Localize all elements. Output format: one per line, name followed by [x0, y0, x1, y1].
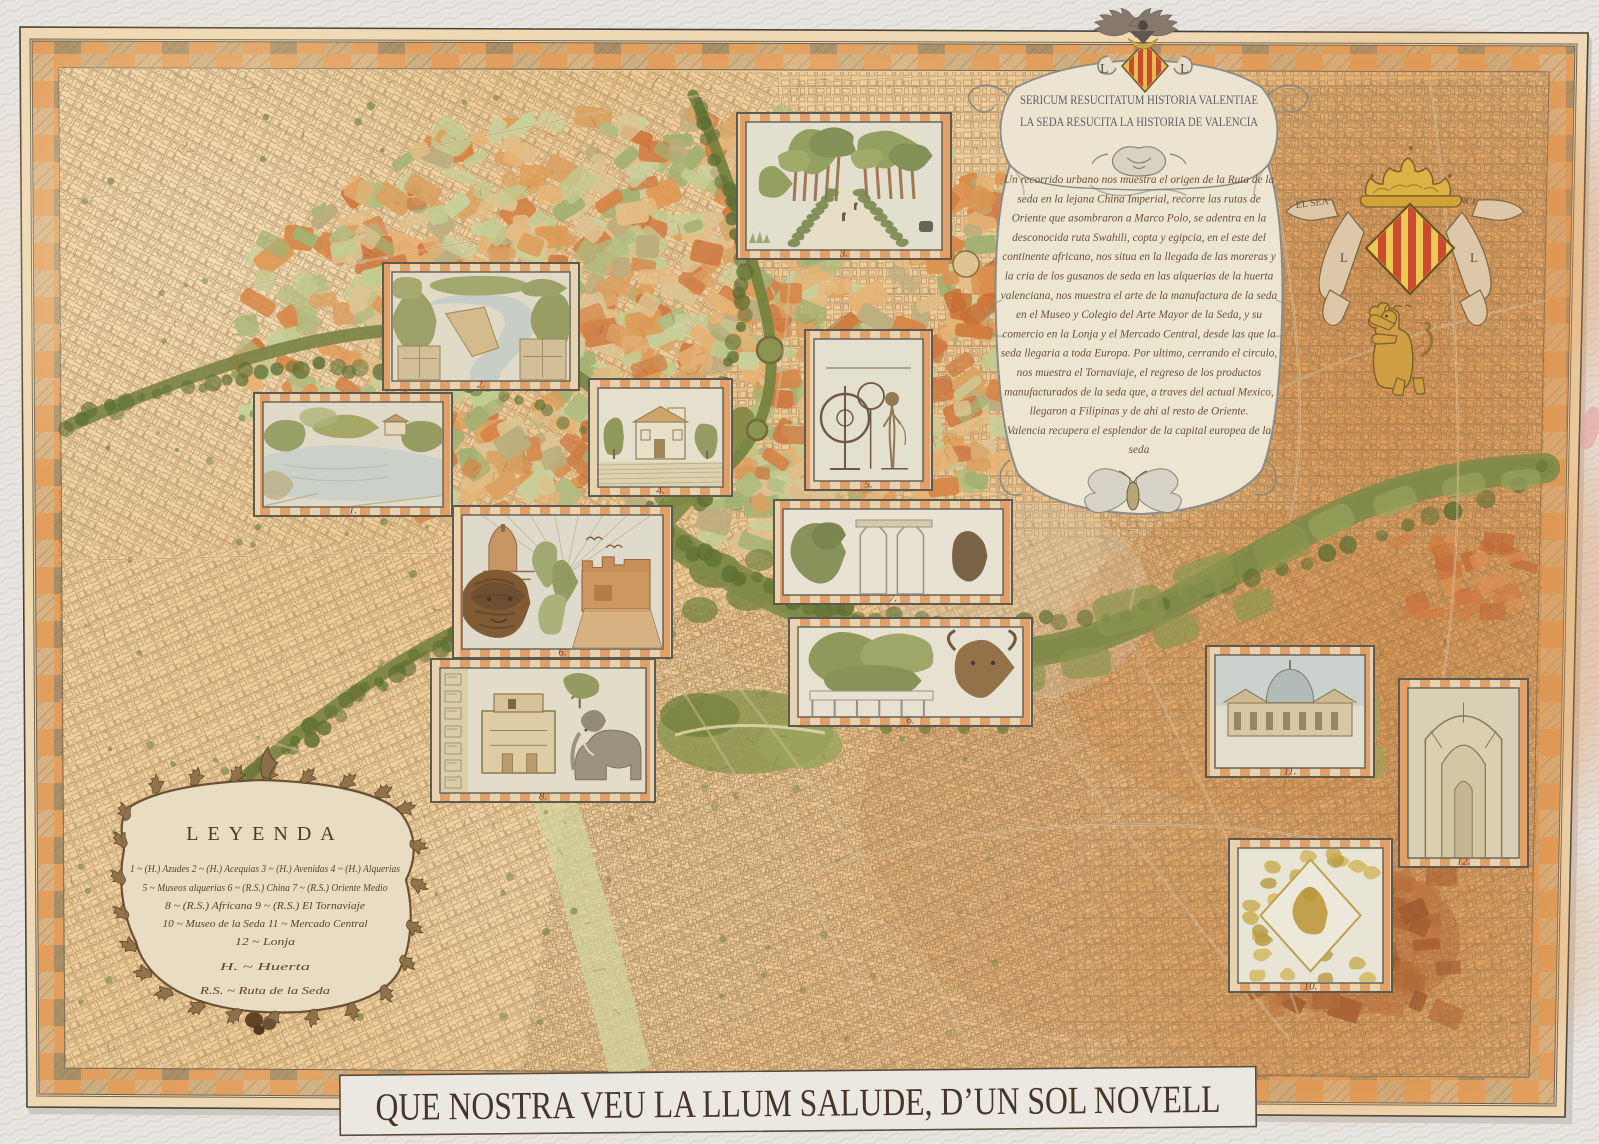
- svg-text:en el Museo y Colegio del Arte: en el Museo y Colegio del Arte Mayor de …: [1016, 309, 1262, 321]
- svg-text:R.S. ~ Ruta de la Seda: R.S. ~ Ruta de la Seda: [199, 985, 331, 997]
- svg-text:4.: 4.: [656, 485, 664, 497]
- svg-text:10.: 10.: [1304, 981, 1318, 993]
- svg-text:12 ~ Lonja: 12 ~ Lonja: [235, 936, 296, 948]
- svg-text:SERICUM RESUCITATUM HISTORIA V: SERICUM RESUCITATUM HISTORIA VALENTIAE: [1020, 92, 1258, 107]
- svg-text:7.: 7.: [889, 593, 897, 605]
- svg-text:la cria de los gusanos de seda: la cria de los gusanos de seda en las al…: [1005, 271, 1274, 283]
- svg-text:seda: seda: [1129, 444, 1150, 456]
- svg-text:seda llegaria a toda Europa. P: seda llegaria a toda Europa. Por ultimo,…: [1001, 348, 1278, 360]
- svg-text:Oriente que asombraron a Marco: Oriente que asombraron a Marco Polo, se …: [1012, 213, 1267, 225]
- svg-text:desconocida ruta Swahili, copt: desconocida ruta Swahili, copta y egipci…: [1012, 232, 1266, 244]
- svg-text:1 ~ (H.) Azudes 2 ~ (H.) Aceq: 1 ~ (H.) Azudes 2 ~ (H.) Acequias 3 ~ (H…: [130, 863, 400, 875]
- svg-text:comercio en la Lonja y el Merc: comercio en la Lonja y el Mercado Centra…: [1002, 328, 1276, 340]
- svg-text:QUE NOSTRA VEU LA LLUM SALUDE: QUE NOSTRA VEU LA LLUM SALUDE, D’UN SOL …: [375, 1078, 1220, 1129]
- svg-text:continente africano, nos situa: continente africano, nos situa en la lle…: [1002, 251, 1276, 263]
- svg-text:L: L: [1340, 250, 1348, 265]
- svg-text:llegaron a Filipinas y de ahi: llegaron a Filipinas y de ahi al resto d…: [1030, 406, 1249, 418]
- svg-text:12.: 12.: [1457, 856, 1471, 868]
- svg-text:LEYENDA: LEYENDA: [186, 823, 343, 845]
- svg-text:2.: 2.: [477, 379, 485, 391]
- svg-text:seda en la lejana China Imperi: seda en la lejana China Imperial, recorr…: [1017, 193, 1260, 205]
- svg-text:11.: 11.: [1284, 766, 1297, 778]
- svg-text:manufacturados de la seda que,: manufacturados de la seda que, a traves …: [1004, 386, 1274, 398]
- svg-text:3.: 3.: [839, 248, 848, 260]
- svg-text:nos muestra el Tornaviaje, el: nos muestra el Tornaviaje, el regreso de…: [1017, 367, 1262, 379]
- svg-text:6.: 6.: [558, 647, 566, 659]
- svg-text:8.: 8.: [539, 791, 547, 803]
- svg-text:valenciana, nos muestra el art: valenciana, nos muestra el arte de la ma…: [1001, 290, 1278, 302]
- svg-text:Valencia recupera el esplendor: Valencia recupera el esplendor de la cap…: [1007, 425, 1272, 437]
- svg-text:LA SEDA RESUCITA LA HISTORIA D: LA SEDA RESUCITA LA HISTORIA DE VALENCIA: [1020, 114, 1258, 129]
- svg-text:6.: 6.: [906, 715, 914, 727]
- svg-text:L: L: [1470, 250, 1478, 265]
- svg-text:H. ~ Huerta: H. ~ Huerta: [218, 961, 311, 973]
- svg-text:1.: 1.: [349, 505, 357, 517]
- svg-text:10 ~ Museo de la Seda 11 ~ Me: 10 ~ Museo de la Seda 11 ~ Mercado Centr…: [163, 918, 368, 930]
- svg-text:8 ~ (R.S.) Africana 9 ~ (R.S.: 8 ~ (R.S.) Africana 9 ~ (R.S.) El Tornav…: [165, 900, 365, 912]
- svg-text:5.: 5.: [864, 479, 872, 491]
- svg-text:L: L: [1180, 62, 1189, 77]
- svg-text:L: L: [1100, 62, 1109, 77]
- svg-text:Un recorrido urbano nos muestr: Un recorrido urbano nos muestra el orige…: [1004, 174, 1275, 186]
- svg-text:5 ~ Museos alquerias 6 ~ (R.S: 5 ~ Museos alquerias 6 ~ (R.S.) China 7 …: [143, 882, 388, 894]
